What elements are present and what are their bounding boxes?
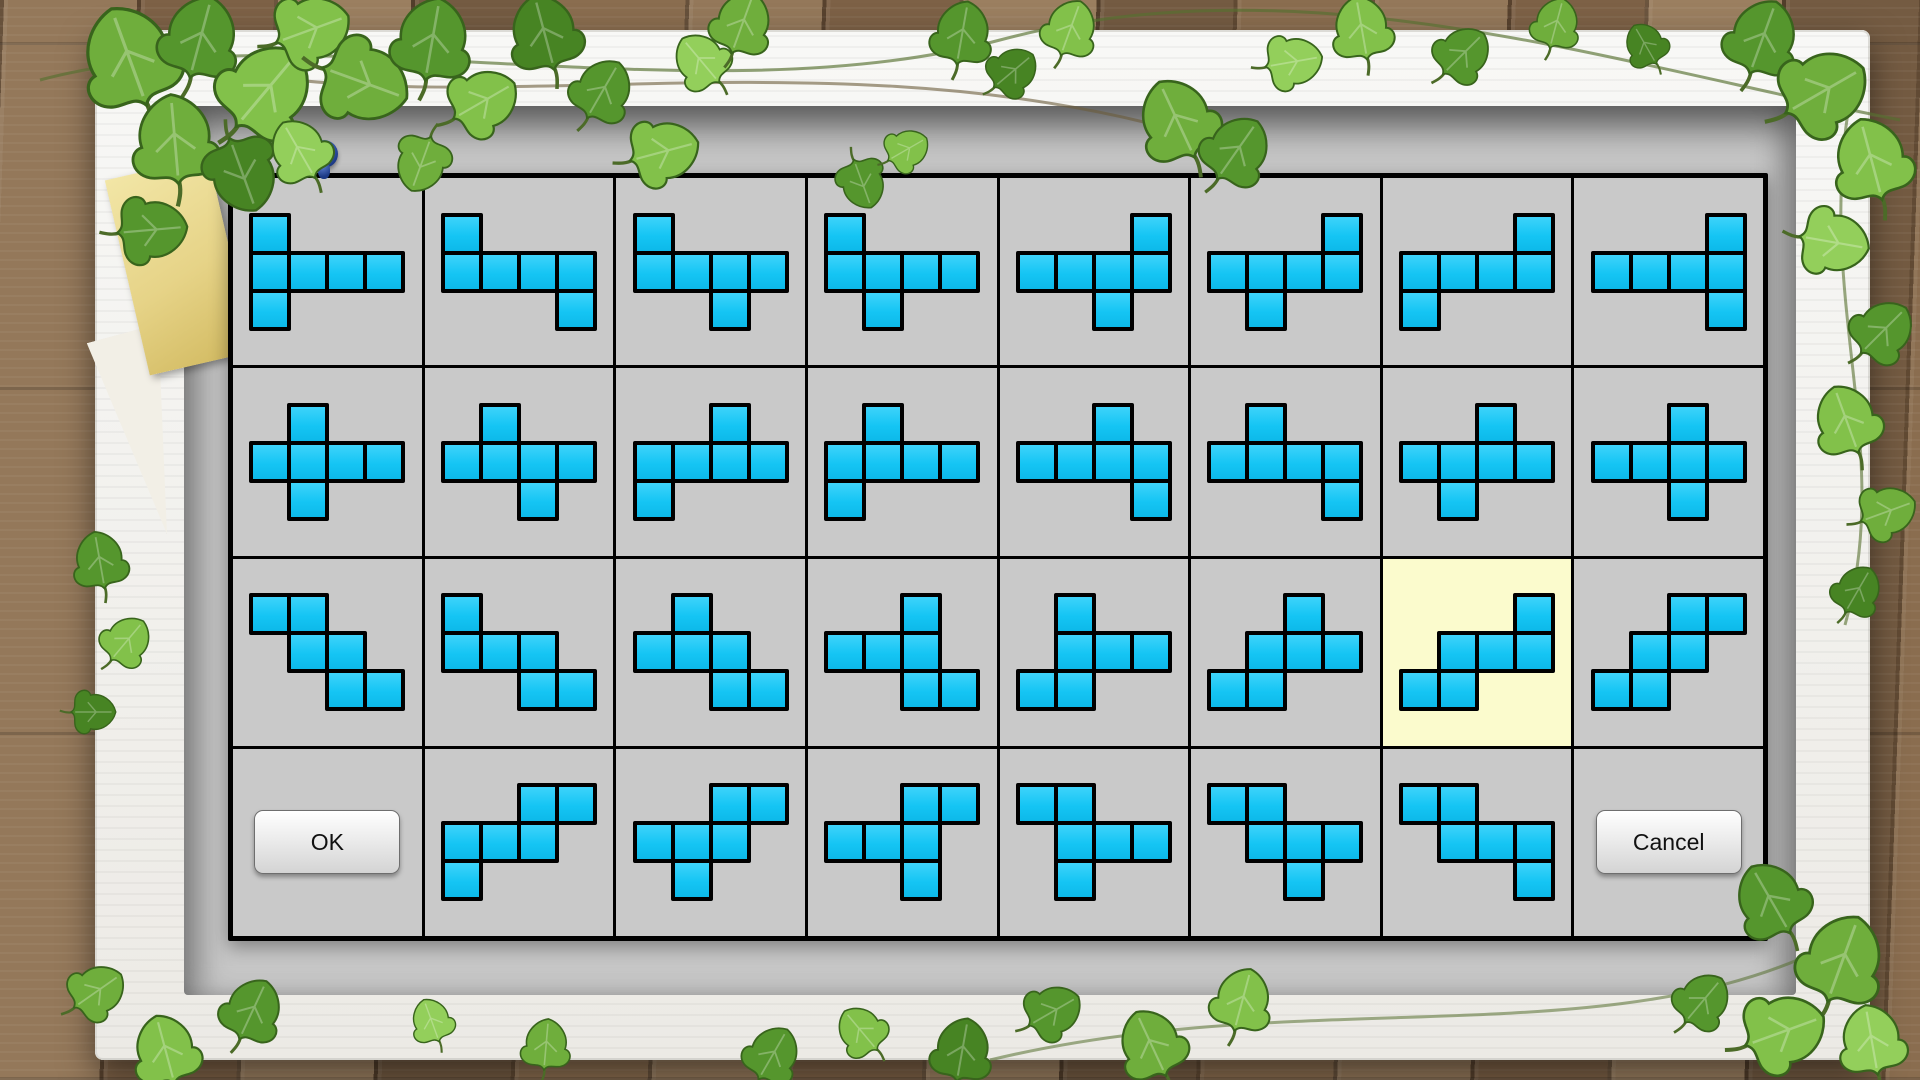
net-cell-r1c3[interactable]: [616, 178, 805, 365]
shape-square: [1130, 251, 1172, 293]
shape-square: [1437, 669, 1479, 711]
shape-square: [287, 403, 329, 445]
shape-square: [1130, 213, 1172, 255]
shape-square: [938, 669, 980, 711]
shape-square: [1245, 669, 1287, 711]
shape-square: [1629, 669, 1671, 711]
polyomino-shape: [1016, 593, 1172, 711]
polyomino-shape: [1207, 403, 1363, 521]
shape-square: [1705, 213, 1747, 255]
shape-square: [1667, 479, 1709, 521]
shape-square: [555, 289, 597, 331]
polyomino-shape: [1399, 213, 1555, 331]
shape-square: [1667, 631, 1709, 673]
shape-square: [709, 441, 751, 483]
shape-square: [1054, 821, 1096, 863]
polyomino-shape: [1399, 403, 1555, 521]
polyomino-shape: [1399, 593, 1555, 711]
shape-square: [441, 213, 483, 255]
shape-square: [1399, 251, 1441, 293]
shape-square: [1399, 783, 1441, 825]
shape-square: [287, 593, 329, 635]
shape-square: [1092, 441, 1134, 483]
shape-square: [900, 441, 942, 483]
push-pin: [310, 140, 338, 168]
shape-square: [1591, 251, 1633, 293]
shape-square: [1667, 403, 1709, 445]
shape-square: [1092, 821, 1134, 863]
shape-square: [1245, 289, 1287, 331]
polyomino-shape: [633, 403, 789, 521]
shape-square: [1629, 631, 1671, 673]
shape-square: [1130, 441, 1172, 483]
shape-square: [824, 631, 866, 673]
shape-square: [709, 631, 751, 673]
ok-button[interactable]: OK: [254, 810, 400, 874]
shape-square: [363, 251, 405, 293]
shape-square: [479, 821, 521, 863]
shape-square: [862, 821, 904, 863]
shape-square: [363, 669, 405, 711]
shape-square: [1245, 403, 1287, 445]
shape-square: [747, 251, 789, 293]
shape-square: [287, 631, 329, 673]
shape-square: [249, 251, 291, 293]
shape-square: [900, 631, 942, 673]
shape-square: [671, 441, 713, 483]
shape-square: [1054, 593, 1096, 635]
shape-square: [709, 783, 751, 825]
shape-square: [633, 631, 675, 673]
polyomino-shape: [824, 593, 980, 711]
cancel-button[interactable]: Cancel: [1596, 810, 1742, 874]
shape-square: [555, 251, 597, 293]
shape-square: [555, 441, 597, 483]
shape-square: [633, 821, 675, 863]
polyomino-shape: [633, 593, 789, 711]
shape-square: [633, 441, 675, 483]
shape-square: [1321, 213, 1363, 255]
shape-square: [1207, 669, 1249, 711]
shape-square: [900, 669, 942, 711]
shape-square: [1130, 479, 1172, 521]
shape-square: [1591, 669, 1633, 711]
shape-square: [1591, 441, 1633, 483]
shape-square: [517, 441, 559, 483]
net-cell-r3c2[interactable]: [425, 559, 614, 746]
polyomino-shape: [441, 213, 597, 331]
shape-square: [747, 441, 789, 483]
shape-square: [1283, 441, 1325, 483]
shape-square: [824, 821, 866, 863]
polyomino-shape: [249, 403, 405, 521]
net-cell-r1c4[interactable]: [808, 178, 997, 365]
shape-square: [671, 821, 713, 863]
shape-square: [441, 859, 483, 901]
shape-square: [862, 441, 904, 483]
shape-square: [1207, 441, 1249, 483]
shape-square: [1283, 821, 1325, 863]
net-cell-r4c7[interactable]: [1383, 749, 1572, 936]
shape-square: [938, 441, 980, 483]
shape-square: [1513, 441, 1555, 483]
shape-square: [1092, 251, 1134, 293]
shape-square: [1283, 251, 1325, 293]
shape-square: [862, 631, 904, 673]
shape-square: [1437, 251, 1479, 293]
shape-square: [517, 783, 559, 825]
shape-square: [1475, 251, 1517, 293]
shape-square: [900, 593, 942, 635]
shape-square: [555, 669, 597, 711]
shape-square: [325, 669, 367, 711]
shape-square: [1321, 479, 1363, 521]
shape-square: [1321, 251, 1363, 293]
shape-square: [1667, 251, 1709, 293]
net-cell-r1c5[interactable]: [1000, 178, 1189, 365]
shape-square: [1437, 821, 1479, 863]
shape-square: [1092, 289, 1134, 331]
polyomino-shape: [1591, 403, 1747, 521]
net-cell-r2c7[interactable]: [1383, 368, 1572, 555]
shape-square: [441, 251, 483, 293]
shape-square: [709, 821, 751, 863]
shape-square: [862, 403, 904, 445]
shape-square: [555, 783, 597, 825]
shape-square: [1667, 593, 1709, 635]
polyomino-shape: [633, 213, 789, 331]
shape-square: [1513, 631, 1555, 673]
shape-square: [517, 479, 559, 521]
polyomino-shape: [249, 213, 405, 331]
net-cell-r2c5[interactable]: [1000, 368, 1189, 555]
shape-square: [1629, 251, 1671, 293]
shape-square: [633, 251, 675, 293]
shape-square: [1054, 631, 1096, 673]
shape-square: [1513, 213, 1555, 255]
shape-square: [479, 403, 521, 445]
shape-square: [1130, 821, 1172, 863]
shape-square: [1016, 441, 1058, 483]
shape-square: [900, 821, 942, 863]
shape-square: [1513, 251, 1555, 293]
shape-square: [517, 669, 559, 711]
net-cell-r3c1[interactable]: [233, 559, 422, 746]
net-cell-r2c4[interactable]: [808, 368, 997, 555]
shape-square: [517, 821, 559, 863]
net-cell-r3c4[interactable]: [808, 559, 997, 746]
shape-square: [1207, 251, 1249, 293]
shape-square: [1705, 441, 1747, 483]
shape-square: [325, 251, 367, 293]
shape-square: [287, 441, 329, 483]
polyomino-shape: [249, 593, 405, 711]
net-cell-r3c3[interactable]: [616, 559, 805, 746]
shape-square: [824, 441, 866, 483]
shape-square: [1054, 251, 1096, 293]
shape-square: [1245, 631, 1287, 673]
shape-square: [1245, 783, 1287, 825]
polyomino-shape: [824, 783, 980, 901]
shape-square: [1054, 859, 1096, 901]
polyomino-shape: [441, 403, 597, 521]
polyomino-shape: [1207, 783, 1363, 901]
shape-square: [1513, 821, 1555, 863]
shape-square: [1437, 783, 1479, 825]
shape-square: [1667, 441, 1709, 483]
shape-square: [1437, 631, 1479, 673]
net-cell-r4c3[interactable]: [616, 749, 805, 936]
shape-square: [862, 251, 904, 293]
shape-square: [1321, 821, 1363, 863]
shape-square: [1437, 441, 1479, 483]
shape-square: [1016, 783, 1058, 825]
shape-square: [671, 631, 713, 673]
shape-square: [862, 289, 904, 331]
shape-square: [1283, 593, 1325, 635]
net-selection-grid: OKCancel: [228, 173, 1768, 941]
shape-square: [824, 251, 866, 293]
shape-square: [441, 821, 483, 863]
shape-square: [671, 859, 713, 901]
shape-square: [747, 669, 789, 711]
net-cell-r3c5[interactable]: [1000, 559, 1189, 746]
shape-square: [1016, 669, 1058, 711]
polyomino-shape: [441, 783, 597, 901]
shape-square: [441, 593, 483, 635]
shape-square: [824, 213, 866, 255]
shape-square: [287, 479, 329, 521]
shape-square: [1705, 251, 1747, 293]
shape-square: [517, 631, 559, 673]
shape-square: [1054, 441, 1096, 483]
net-cell-r3c7[interactable]: [1383, 559, 1572, 746]
shape-square: [249, 593, 291, 635]
shape-square: [1513, 593, 1555, 635]
net-cell-r2c1[interactable]: [233, 368, 422, 555]
net-cell-r2c3[interactable]: [616, 368, 805, 555]
shape-square: [363, 441, 405, 483]
game-stage: OKCancel: [0, 0, 1920, 1080]
shape-square: [709, 403, 751, 445]
shape-square: [479, 631, 521, 673]
shape-square: [1092, 403, 1134, 445]
net-cell-r1c1[interactable]: [233, 178, 422, 365]
net-cell-r1c7[interactable]: [1383, 178, 1572, 365]
shape-square: [441, 441, 483, 483]
polyomino-shape: [1591, 593, 1747, 711]
shape-square: [1016, 251, 1058, 293]
shape-square: [633, 213, 675, 255]
net-cell-r1c6[interactable]: [1191, 178, 1380, 365]
shape-square: [479, 441, 521, 483]
shape-square: [1629, 441, 1671, 483]
net-cell-r1c8[interactable]: [1574, 178, 1763, 365]
polyomino-shape: [1399, 783, 1555, 901]
net-cell-r4c8[interactable]: Cancel: [1574, 749, 1763, 936]
shape-square: [1513, 859, 1555, 901]
shape-square: [517, 251, 559, 293]
polyomino-shape: [1016, 213, 1172, 331]
net-cell-r4c5[interactable]: [1000, 749, 1189, 936]
net-cell-r2c2[interactable]: [425, 368, 614, 555]
net-cell-r4c6[interactable]: [1191, 749, 1380, 936]
net-cell-r2c8[interactable]: [1574, 368, 1763, 555]
polyomino-shape: [824, 403, 980, 521]
polyomino-shape: [1207, 213, 1363, 331]
shape-square: [1207, 783, 1249, 825]
shape-square: [479, 251, 521, 293]
net-cell-r4c2[interactable]: [425, 749, 614, 936]
shape-square: [938, 783, 980, 825]
polyomino-shape: [1016, 403, 1172, 521]
shape-square: [1399, 441, 1441, 483]
shape-square: [633, 479, 675, 521]
shape-square: [1475, 441, 1517, 483]
shape-square: [1399, 669, 1441, 711]
shape-square: [671, 251, 713, 293]
shape-square: [1054, 669, 1096, 711]
shape-square: [441, 631, 483, 673]
polyomino-shape: [633, 783, 789, 901]
net-cell-r1c2[interactable]: [425, 178, 614, 365]
shape-square: [1245, 821, 1287, 863]
shape-square: [1283, 631, 1325, 673]
shape-square: [1399, 289, 1441, 331]
shape-square: [1475, 403, 1517, 445]
polyomino-shape: [1016, 783, 1172, 901]
shape-square: [1130, 631, 1172, 673]
shape-square: [900, 783, 942, 825]
shape-square: [1705, 289, 1747, 331]
shape-square: [709, 251, 751, 293]
shape-square: [1283, 859, 1325, 901]
shape-square: [1437, 479, 1479, 521]
shape-square: [1475, 631, 1517, 673]
shape-square: [900, 251, 942, 293]
net-cell-r3c8[interactable]: [1574, 559, 1763, 746]
shape-square: [325, 441, 367, 483]
net-cell-r4c4[interactable]: [808, 749, 997, 936]
net-cell-r4c1[interactable]: OK: [233, 749, 422, 936]
shape-square: [1321, 441, 1363, 483]
shape-square: [1321, 631, 1363, 673]
polyomino-shape: [824, 213, 980, 331]
shape-square: [287, 251, 329, 293]
shape-square: [1054, 783, 1096, 825]
shape-square: [249, 441, 291, 483]
shape-square: [1245, 251, 1287, 293]
shape-square: [1475, 821, 1517, 863]
shape-square: [249, 213, 291, 255]
shape-square: [900, 859, 942, 901]
shape-square: [709, 669, 751, 711]
shape-square: [325, 631, 367, 673]
shape-square: [1092, 631, 1134, 673]
shape-square: [824, 479, 866, 521]
net-cell-r2c6[interactable]: [1191, 368, 1380, 555]
net-cell-r3c6[interactable]: [1191, 559, 1380, 746]
shape-square: [938, 251, 980, 293]
polyomino-shape: [1591, 213, 1747, 331]
shape-square: [709, 289, 751, 331]
shape-square: [747, 783, 789, 825]
polyomino-shape: [1207, 593, 1363, 711]
shape-square: [1245, 441, 1287, 483]
polyomino-shape: [441, 593, 597, 711]
shape-square: [249, 289, 291, 331]
shape-square: [1705, 593, 1747, 635]
shape-square: [671, 593, 713, 635]
